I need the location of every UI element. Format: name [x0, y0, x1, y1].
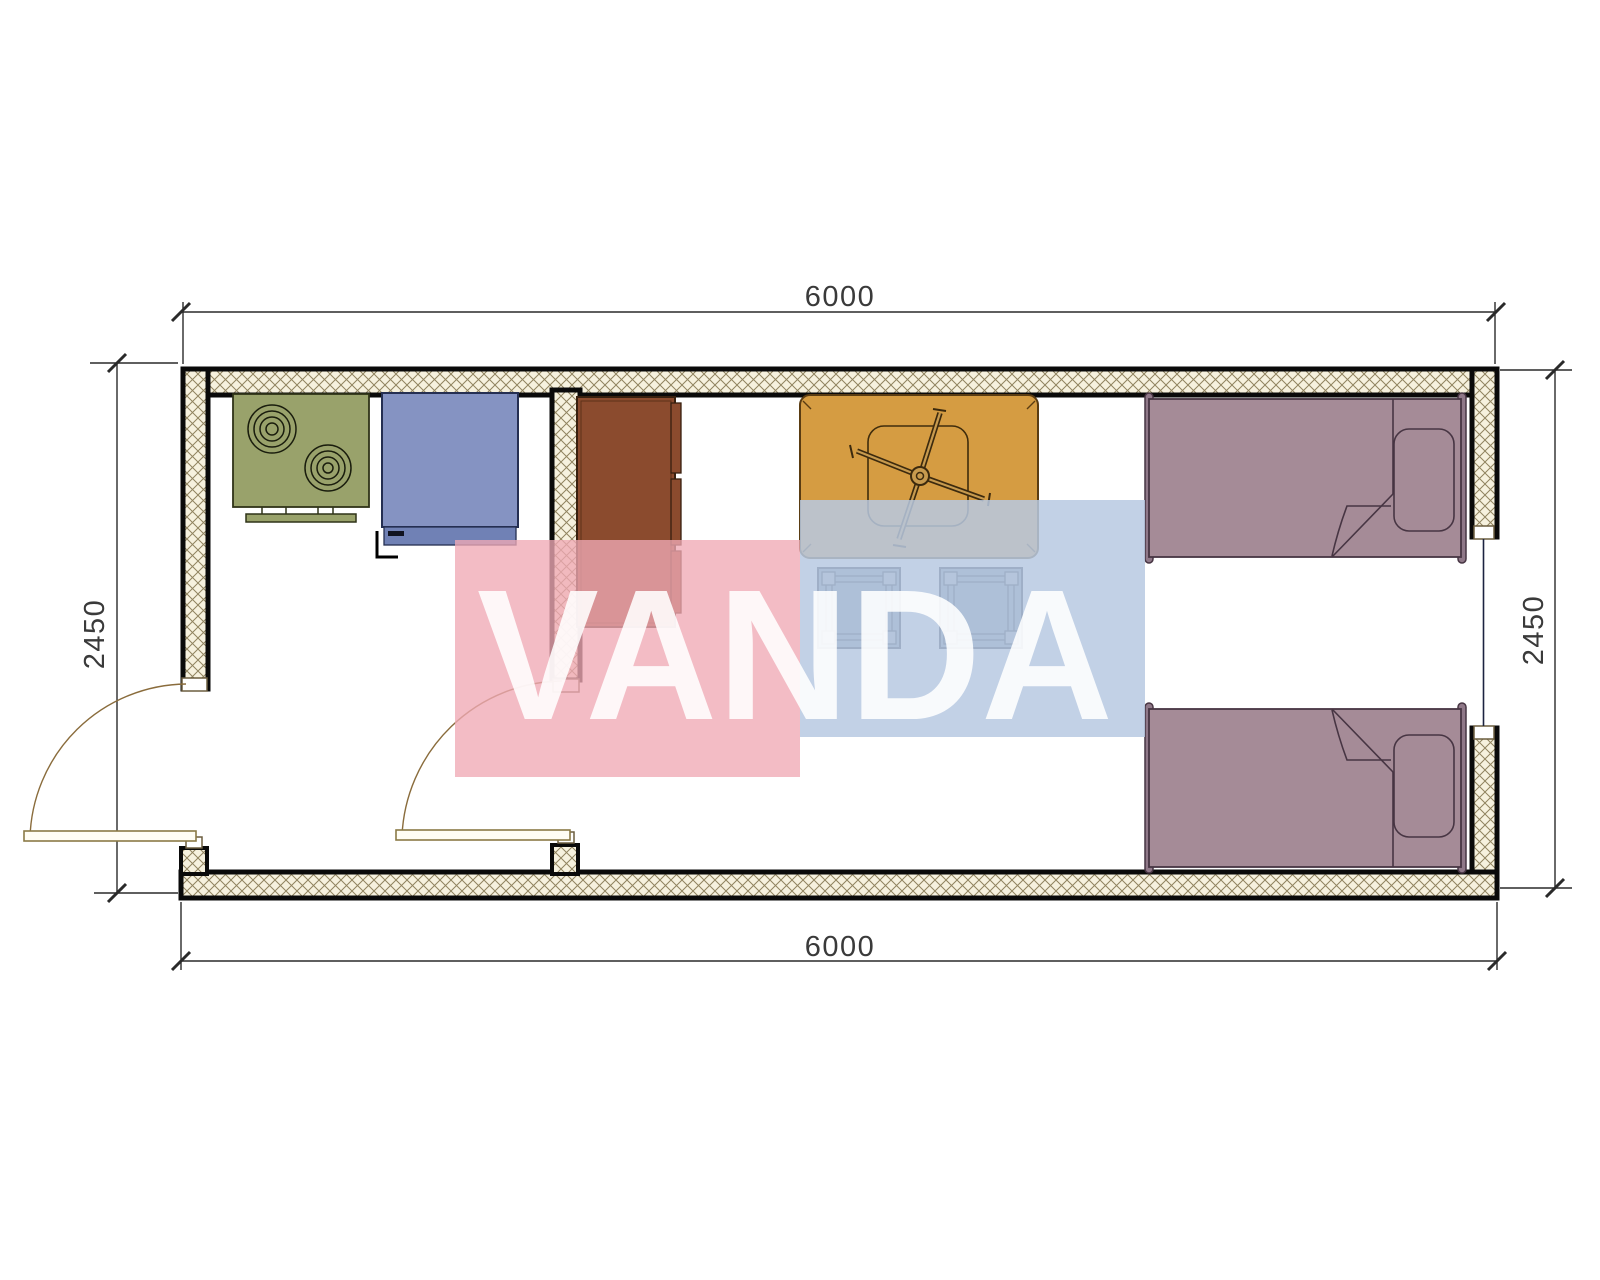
- dimension-left: 2450: [79, 354, 178, 902]
- dimension-bottom-label: 6000: [805, 931, 876, 963]
- wall-stub-left: [181, 848, 207, 874]
- dimension-bottom: 6000: [172, 902, 1506, 970]
- wall-bottom: [181, 872, 1497, 898]
- wall-left: [183, 369, 208, 689]
- single-bed-symbol: [1145, 703, 1466, 873]
- washing-machine-symbol: [377, 393, 518, 557]
- stove-handle: [246, 507, 356, 522]
- floor-plan-svg: 6000 6000 2450 2450: [0, 0, 1600, 1280]
- door-left: [24, 684, 196, 841]
- watermark-text: VANDA: [477, 552, 1113, 759]
- door-leaf: [24, 831, 196, 841]
- stove-symbol: [233, 394, 369, 522]
- floor-plan-page: 6000 6000 2450 2450: [0, 0, 1600, 1280]
- single-bed-symbol: [1145, 393, 1466, 563]
- watermark: VANDA: [455, 500, 1145, 777]
- dimension-top-label: 6000: [805, 281, 876, 313]
- wall-stub-middle: [552, 845, 578, 874]
- dimension-top: 6000: [172, 281, 1505, 364]
- dimension-right-label: 2450: [1518, 595, 1550, 666]
- wall-top: [183, 369, 1497, 395]
- door-leaf: [396, 830, 570, 840]
- wall-right-upper: [1472, 369, 1497, 537]
- door-swing-arc: [30, 684, 186, 838]
- washer-latch: [388, 531, 404, 536]
- dimension-left-label: 2450: [79, 599, 111, 670]
- dimension-right: 2450: [1500, 361, 1572, 897]
